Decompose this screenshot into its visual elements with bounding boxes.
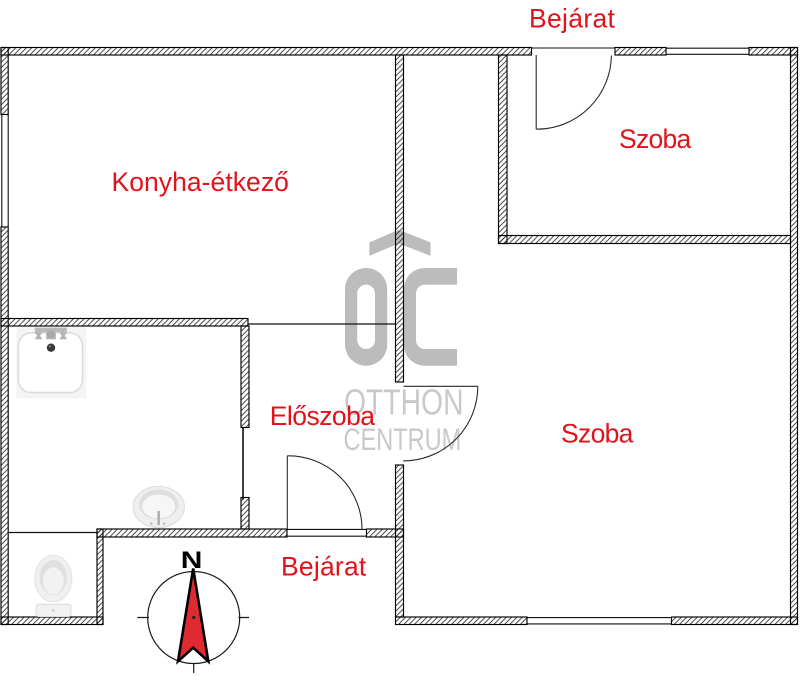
svg-text:Szoba: Szoba xyxy=(619,124,691,154)
svg-text:N: N xyxy=(181,546,203,573)
svg-text:Bejárat: Bejárat xyxy=(281,552,367,582)
svg-text:Konyha-étkező: Konyha-étkező xyxy=(112,167,289,197)
svg-text:Szoba: Szoba xyxy=(561,419,634,449)
svg-text:Előszoba: Előszoba xyxy=(270,401,375,431)
svg-text:Bejárat: Bejárat xyxy=(529,4,616,34)
